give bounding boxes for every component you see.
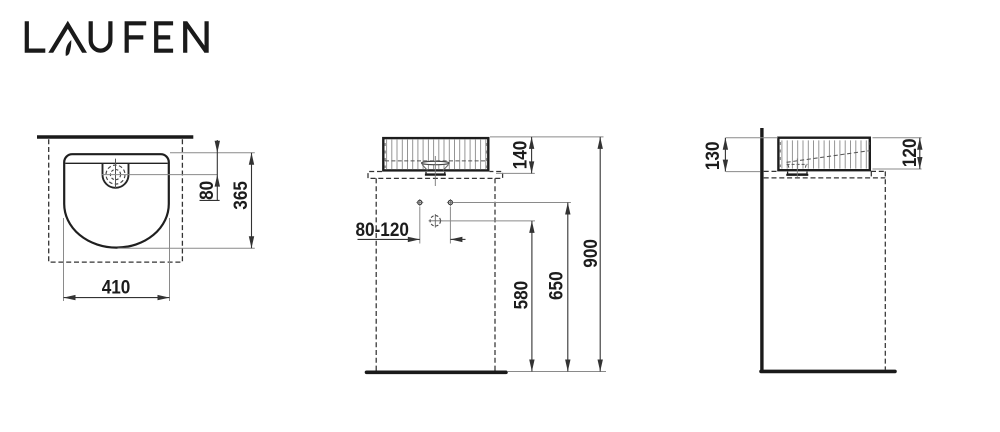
svg-text:365: 365 (229, 181, 251, 210)
svg-text:80: 80 (195, 181, 217, 200)
svg-text:130: 130 (701, 141, 723, 170)
svg-text:900: 900 (579, 239, 601, 268)
svg-text:410: 410 (102, 276, 131, 298)
svg-text:140: 140 (509, 141, 531, 170)
svg-text:580: 580 (509, 281, 531, 310)
svg-text:120: 120 (898, 138, 920, 167)
svg-text:650: 650 (545, 271, 567, 300)
svg-text:80-120: 80-120 (355, 218, 408, 240)
